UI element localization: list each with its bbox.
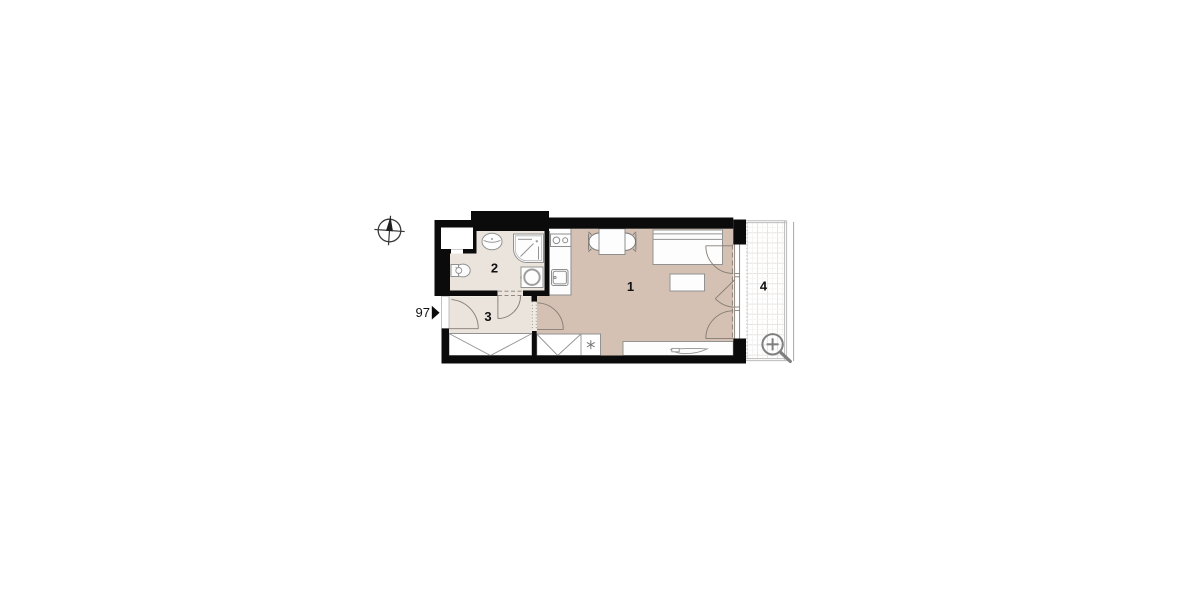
svg-text:3: 3 [484,309,491,324]
svg-text:2: 2 [491,261,498,276]
svg-text:1: 1 [627,279,634,294]
svg-text:97: 97 [416,305,430,320]
svg-text:4: 4 [760,279,768,294]
